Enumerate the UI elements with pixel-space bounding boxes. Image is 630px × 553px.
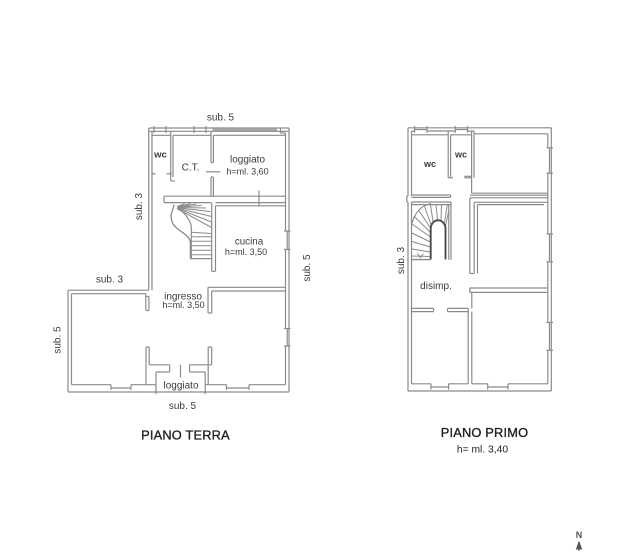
svg-text:h=ml. 3,50: h=ml. 3,50	[225, 247, 267, 257]
svg-text:sub. 3: sub. 3	[134, 192, 145, 220]
svg-text:sub. 3: sub. 3	[396, 246, 407, 274]
svg-text:cucina: cucina	[235, 236, 264, 247]
svg-text:PIANO PRIMO: PIANO PRIMO	[441, 425, 529, 440]
svg-text:sub. 3: sub. 3	[96, 275, 124, 286]
svg-text:sub. 5: sub. 5	[53, 326, 64, 354]
svg-text:h= ml. 3,40: h= ml. 3,40	[457, 444, 509, 455]
svg-text:sub. 5: sub. 5	[169, 401, 197, 412]
svg-text:h=ml. 3,50: h=ml. 3,50	[162, 300, 204, 310]
svg-text:wc: wc	[454, 150, 467, 160]
svg-text:C.T.: C.T.	[182, 163, 200, 174]
svg-text:wc: wc	[153, 149, 167, 160]
svg-text:loggiato: loggiato	[163, 381, 198, 392]
svg-text:wc: wc	[423, 159, 436, 169]
svg-text:h=ml. 3,60: h=ml. 3,60	[226, 167, 268, 177]
svg-text:sub. 5: sub. 5	[302, 254, 313, 282]
svg-text:loggiato: loggiato	[230, 155, 265, 166]
svg-text:PIANO TERRA: PIANO TERRA	[141, 427, 230, 442]
svg-text:sub. 5: sub. 5	[207, 113, 235, 124]
svg-text:N: N	[576, 530, 583, 540]
svg-text:disimp.: disimp.	[420, 281, 452, 292]
